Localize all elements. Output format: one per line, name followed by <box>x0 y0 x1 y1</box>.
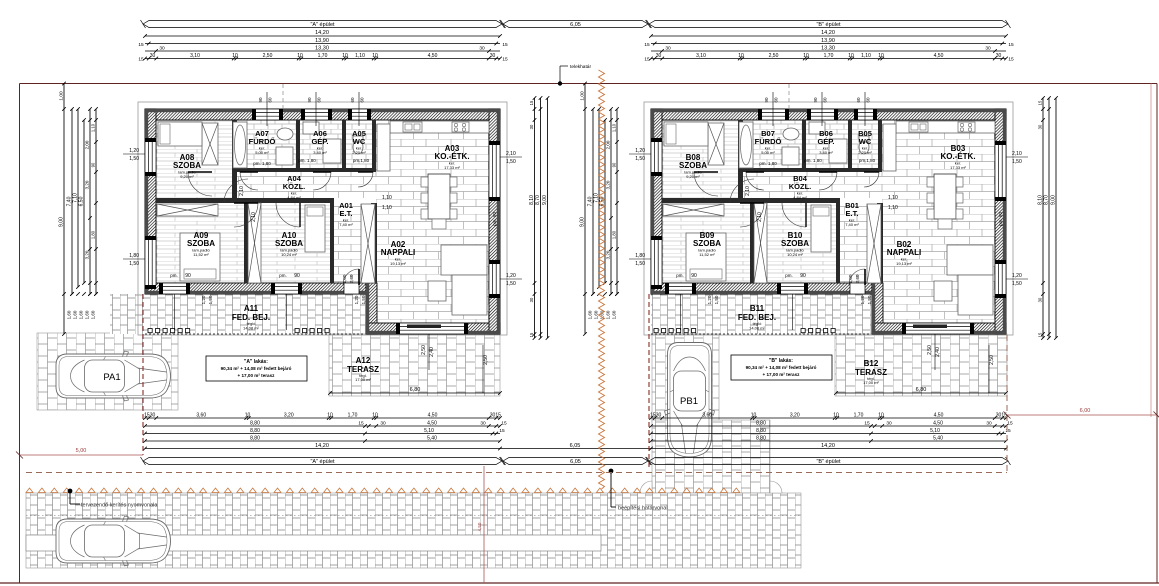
svg-text:pm.: pm. <box>279 273 287 278</box>
svg-text:1,20: 1,20 <box>635 148 645 154</box>
svg-text:3,20: 3,20 <box>284 413 294 419</box>
svg-text:30: 30 <box>1038 297 1043 302</box>
svg-text:9,00: 9,00 <box>580 217 586 227</box>
svg-text:1,60: 1,60 <box>85 310 90 319</box>
svg-text:5,00 m²: 5,00 m² <box>255 150 269 155</box>
svg-text:90: 90 <box>800 273 806 279</box>
svg-text:30: 30 <box>150 413 156 419</box>
svg-text:pm.: pm. <box>170 273 178 278</box>
svg-text:30: 30 <box>490 53 496 59</box>
svg-text:2,50: 2,50 <box>421 345 427 355</box>
svg-text:30: 30 <box>380 421 386 427</box>
svg-text:4,50: 4,50 <box>427 421 437 427</box>
svg-text:3,20: 3,20 <box>606 180 611 189</box>
svg-text:2,10: 2,10 <box>1012 151 1022 157</box>
svg-text:90: 90 <box>813 97 818 103</box>
svg-text:9,20 m²: 9,20 m² <box>686 174 700 179</box>
svg-text:8,80: 8,80 <box>250 421 260 427</box>
svg-text:pm. 1,80: pm. 1,80 <box>253 161 271 166</box>
svg-text:6,80: 6,80 <box>410 387 421 393</box>
svg-text:+ 17,00 m² terasz: + 17,00 m² terasz <box>763 372 801 377</box>
svg-text:30: 30 <box>996 53 1002 59</box>
svg-text:14,20: 14,20 <box>315 443 329 449</box>
svg-text:1,50: 1,50 <box>714 295 719 304</box>
svg-text:60: 60 <box>823 97 828 103</box>
svg-text:pm.1,80: pm.1,80 <box>353 158 370 163</box>
svg-text:1,10: 1,10 <box>91 123 96 132</box>
svg-text:15: 15 <box>358 421 364 427</box>
svg-text:2,50: 2,50 <box>927 345 933 355</box>
svg-text:1,20: 1,20 <box>354 295 359 304</box>
svg-text:pm. 1,80: pm. 1,80 <box>298 158 316 163</box>
svg-text:1,20: 1,20 <box>506 273 516 279</box>
svg-text:1,20: 1,20 <box>860 295 865 304</box>
svg-text:8,80: 8,80 <box>250 428 260 434</box>
svg-text:1,60: 1,60 <box>606 310 611 319</box>
svg-text:1,80: 1,80 <box>635 253 645 259</box>
svg-text:3,20: 3,20 <box>85 250 90 259</box>
svg-text:1,60: 1,60 <box>73 310 78 319</box>
svg-text:17,33 m²: 17,33 m² <box>950 165 966 170</box>
svg-text:19,13 m²: 19,13 m² <box>896 261 912 266</box>
svg-text:8,80: 8,80 <box>250 436 260 442</box>
svg-text:A11: A11 <box>244 304 259 313</box>
svg-text:1,10: 1,10 <box>382 195 392 201</box>
svg-text:3,40 m²: 3,40 m² <box>819 150 833 155</box>
svg-text:4,84 m²: 4,84 m² <box>793 195 807 200</box>
svg-text:1,50: 1,50 <box>635 261 645 267</box>
svg-text:2,40: 2,40 <box>935 347 941 357</box>
svg-text:2,50: 2,50 <box>989 355 995 365</box>
svg-text:3,60: 3,60 <box>702 413 712 419</box>
svg-text:11,52 m²: 11,52 m² <box>193 252 209 257</box>
svg-text:PB1: PB1 <box>680 396 698 407</box>
svg-text:1,70: 1,70 <box>854 413 864 419</box>
svg-text:13,90: 13,90 <box>821 38 835 44</box>
svg-text:1,50: 1,50 <box>129 156 139 162</box>
svg-text:"B" lakás:: "B" lakás: <box>769 358 793 364</box>
svg-text:15: 15 <box>502 42 508 48</box>
svg-text:tervezendő kerítés nyomvonala: tervezendő kerítés nyomvonala <box>81 503 158 509</box>
svg-text:4,50: 4,50 <box>477 522 482 531</box>
svg-text:pm.: pm. <box>785 273 793 278</box>
svg-text:30: 30 <box>656 413 662 419</box>
svg-text:15: 15 <box>1007 421 1013 427</box>
svg-text:90,34 m² + 14,08 m² fedett bej: 90,34 m² + 14,08 m² fedett bejáró <box>746 365 817 370</box>
svg-text:"A" épület: "A" épület <box>310 22 335 28</box>
svg-text:15: 15 <box>1008 42 1014 48</box>
svg-text:13,90: 13,90 <box>315 38 329 44</box>
svg-text:60: 60 <box>268 97 273 103</box>
svg-text:9,00: 9,00 <box>59 217 65 227</box>
svg-text:15: 15 <box>1038 100 1043 105</box>
svg-text:telekhatár: telekhatár <box>570 64 591 70</box>
svg-text:15: 15 <box>499 428 505 434</box>
svg-text:6,05: 6,05 <box>570 443 581 449</box>
svg-text:1,10: 1,10 <box>382 205 392 211</box>
svg-text:pm. 1,80: pm. 1,80 <box>804 158 822 163</box>
svg-text:60: 60 <box>350 97 355 103</box>
svg-text:14,08 m²: 14,08 m² <box>749 326 765 331</box>
svg-text:15: 15 <box>529 100 534 105</box>
svg-text:4,50: 4,50 <box>428 413 438 419</box>
svg-text:15: 15 <box>1008 57 1014 63</box>
svg-text:9,00: 9,00 <box>542 195 548 205</box>
svg-text:"A" épület: "A" épület <box>310 459 335 465</box>
svg-text:"A" lakás:: "A" lakás: <box>244 359 268 365</box>
svg-text:2,10: 2,10 <box>745 186 751 196</box>
svg-text:15: 15 <box>529 332 534 337</box>
svg-text:2,10: 2,10 <box>757 212 763 222</box>
svg-text:15: 15 <box>864 421 870 427</box>
svg-text:9,20 m²: 9,20 m² <box>180 174 194 179</box>
svg-text:1,60: 1,60 <box>612 310 617 319</box>
svg-text:30: 30 <box>656 53 662 59</box>
svg-text:8,80: 8,80 <box>756 421 766 427</box>
svg-text:2,50: 2,50 <box>483 355 489 365</box>
svg-text:2,50: 2,50 <box>769 53 779 59</box>
svg-text:60: 60 <box>360 97 365 103</box>
svg-text:90: 90 <box>258 97 263 103</box>
svg-text:B12: B12 <box>864 359 879 368</box>
svg-text:2,00: 2,00 <box>606 140 611 149</box>
svg-text:90: 90 <box>691 273 697 279</box>
svg-text:4,50: 4,50 <box>933 421 943 427</box>
svg-text:1,10: 1,10 <box>888 205 898 211</box>
svg-text:5,00: 5,00 <box>76 448 87 454</box>
svg-text:9,00: 9,00 <box>1051 195 1057 205</box>
svg-text:1,50: 1,50 <box>506 281 516 287</box>
svg-text:11,52 m²: 11,52 m² <box>699 252 715 257</box>
svg-text:1,60: 1,60 <box>79 310 84 319</box>
svg-text:13,30: 13,30 <box>821 46 835 52</box>
svg-text:30: 30 <box>1038 124 1043 129</box>
svg-text:7,40 m²: 7,40 m² <box>339 222 353 227</box>
svg-text:5,40: 5,40 <box>427 436 437 442</box>
svg-text:1,20: 1,20 <box>1012 273 1022 279</box>
svg-text:1,50: 1,50 <box>506 159 516 165</box>
svg-text:14,20: 14,20 <box>821 443 835 449</box>
svg-text:90: 90 <box>294 273 300 279</box>
svg-text:6,05: 6,05 <box>570 459 581 465</box>
svg-text:90: 90 <box>764 97 769 103</box>
svg-text:1,60: 1,60 <box>91 310 96 319</box>
svg-text:8,80: 8,80 <box>756 436 766 442</box>
svg-text:1,10: 1,10 <box>355 53 365 59</box>
svg-text:14,08 m²: 14,08 m² <box>243 326 259 331</box>
svg-text:"B" épület: "B" épület <box>816 22 841 28</box>
svg-text:1,80: 1,80 <box>91 230 96 239</box>
svg-text:1,20: 1,20 <box>707 295 712 304</box>
svg-text:2,20 m²: 2,20 m² <box>858 150 872 155</box>
svg-text:2,40: 2,40 <box>349 274 354 283</box>
svg-text:10,24 m²: 10,24 m² <box>281 252 297 257</box>
svg-text:1,50: 1,50 <box>1012 159 1022 165</box>
svg-text:4,84 m²: 4,84 m² <box>287 195 301 200</box>
svg-text:1,50: 1,50 <box>208 295 213 304</box>
svg-text:pm. 1,80: pm. 1,80 <box>759 161 777 166</box>
svg-text:6,50: 6,50 <box>79 196 85 206</box>
svg-text:2,10: 2,10 <box>251 212 257 222</box>
svg-text:2,40: 2,40 <box>429 347 435 357</box>
svg-text:6,80: 6,80 <box>916 387 927 393</box>
svg-text:30: 30 <box>480 421 486 427</box>
svg-text:60: 60 <box>866 97 871 103</box>
svg-text:pm. 90: pm. 90 <box>492 212 497 226</box>
svg-text:"B" épület: "B" épület <box>816 459 841 465</box>
svg-text:3,20: 3,20 <box>85 180 90 189</box>
svg-text:3,60: 3,60 <box>196 413 206 419</box>
svg-text:30: 30 <box>150 53 156 59</box>
svg-text:1,50: 1,50 <box>129 261 139 267</box>
svg-text:pm.: pm. <box>676 273 684 278</box>
svg-text:30: 30 <box>985 46 991 52</box>
svg-text:8,70: 8,70 <box>535 195 541 205</box>
svg-text:60: 60 <box>856 97 861 103</box>
svg-text:15: 15 <box>644 42 650 48</box>
svg-text:4,50: 4,50 <box>428 53 438 59</box>
svg-text:1,50: 1,50 <box>361 295 366 304</box>
svg-text:2,10: 2,10 <box>239 186 245 196</box>
svg-text:5,10: 5,10 <box>930 428 940 434</box>
svg-text:15: 15 <box>138 57 144 63</box>
svg-text:3,40 m²: 3,40 m² <box>313 150 327 155</box>
svg-text:15: 15 <box>1038 332 1043 337</box>
svg-text:5,10: 5,10 <box>424 428 434 434</box>
svg-text:8,80: 8,80 <box>756 428 766 434</box>
svg-text:17,00 m²: 17,00 m² <box>863 380 879 385</box>
svg-text:1,50: 1,50 <box>1012 281 1022 287</box>
svg-text:1,70: 1,70 <box>318 53 328 59</box>
svg-text:pm.1,80: pm.1,80 <box>859 158 876 163</box>
svg-text:1,00: 1,00 <box>580 91 586 101</box>
svg-text:6,00: 6,00 <box>1080 408 1091 414</box>
svg-text:15: 15 <box>644 57 650 63</box>
svg-text:13,30: 13,30 <box>315 46 329 52</box>
svg-text:+ 17,00 m² terasz: + 17,00 m² terasz <box>238 373 276 378</box>
svg-text:PA1: PA1 <box>103 372 120 383</box>
svg-text:1,10: 1,10 <box>612 123 617 132</box>
svg-text:4,50: 4,50 <box>934 413 944 419</box>
svg-text:1,50: 1,50 <box>867 295 872 304</box>
svg-text:90: 90 <box>91 162 96 167</box>
svg-text:1,60: 1,60 <box>67 310 72 319</box>
svg-text:1,60: 1,60 <box>588 310 593 319</box>
svg-text:beépítési határvonal: beépítési határvonal <box>618 506 668 512</box>
svg-text:A12: A12 <box>356 356 371 365</box>
svg-text:15: 15 <box>138 42 144 48</box>
svg-text:3,20: 3,20 <box>790 413 800 419</box>
svg-text:1,80: 1,80 <box>129 253 139 259</box>
svg-text:30: 30 <box>529 124 534 129</box>
svg-text:30: 30 <box>479 46 485 52</box>
svg-text:1,60: 1,60 <box>594 310 599 319</box>
svg-text:30: 30 <box>529 297 534 302</box>
svg-text:90: 90 <box>307 97 312 103</box>
svg-text:14,20: 14,20 <box>315 30 329 36</box>
svg-text:2,00: 2,00 <box>85 140 90 149</box>
svg-text:1,80: 1,80 <box>612 230 617 239</box>
svg-text:1,20: 1,20 <box>129 148 139 154</box>
svg-text:30: 30 <box>665 46 671 52</box>
svg-text:2,50: 2,50 <box>263 53 273 59</box>
svg-text:1,00: 1,00 <box>342 274 347 283</box>
svg-text:3,20: 3,20 <box>606 250 611 259</box>
svg-text:1,20: 1,20 <box>201 295 206 304</box>
svg-text:90: 90 <box>612 162 617 167</box>
svg-text:15: 15 <box>502 57 508 63</box>
svg-text:1,10: 1,10 <box>861 53 871 59</box>
svg-text:2,40: 2,40 <box>855 274 860 283</box>
svg-text:30: 30 <box>159 46 165 52</box>
svg-text:6,05: 6,05 <box>570 22 581 28</box>
svg-text:3,10: 3,10 <box>190 53 200 59</box>
svg-text:17,33 m²: 17,33 m² <box>444 165 460 170</box>
svg-text:1,70: 1,70 <box>824 53 834 59</box>
svg-text:7,40 m²: 7,40 m² <box>845 222 859 227</box>
svg-text:pm. 90: pm. 90 <box>998 212 1003 226</box>
svg-text:60: 60 <box>774 97 779 103</box>
svg-text:1,50: 1,50 <box>635 156 645 162</box>
svg-text:2,20 m²: 2,20 m² <box>352 150 366 155</box>
svg-text:3,10: 3,10 <box>696 53 706 59</box>
svg-text:1,10: 1,10 <box>888 195 898 201</box>
svg-text:2,10: 2,10 <box>506 151 516 157</box>
svg-text:15: 15 <box>1005 428 1011 434</box>
svg-text:90: 90 <box>185 273 191 279</box>
svg-text:8,70: 8,70 <box>1044 195 1050 205</box>
svg-text:5,00 m²: 5,00 m² <box>761 150 775 155</box>
svg-text:30: 30 <box>986 421 992 427</box>
svg-text:B11: B11 <box>750 304 765 313</box>
svg-text:4,50: 4,50 <box>934 53 944 59</box>
svg-text:60: 60 <box>317 97 322 103</box>
svg-text:5,40: 5,40 <box>933 436 943 442</box>
svg-text:1,00: 1,00 <box>848 274 853 283</box>
svg-text:19,13 m²: 19,13 m² <box>390 261 406 266</box>
svg-text:10,24 m²: 10,24 m² <box>787 252 803 257</box>
svg-text:14,20: 14,20 <box>821 30 835 36</box>
svg-text:30: 30 <box>886 421 892 427</box>
svg-text:1,00: 1,00 <box>59 91 65 101</box>
svg-text:15: 15 <box>501 421 507 427</box>
svg-text:90,34 m² + 14,08 m² fedett bej: 90,34 m² + 14,08 m² fedett bejáró <box>221 366 292 371</box>
svg-text:1,70: 1,70 <box>348 413 358 419</box>
svg-text:17,00 m²: 17,00 m² <box>355 377 371 382</box>
